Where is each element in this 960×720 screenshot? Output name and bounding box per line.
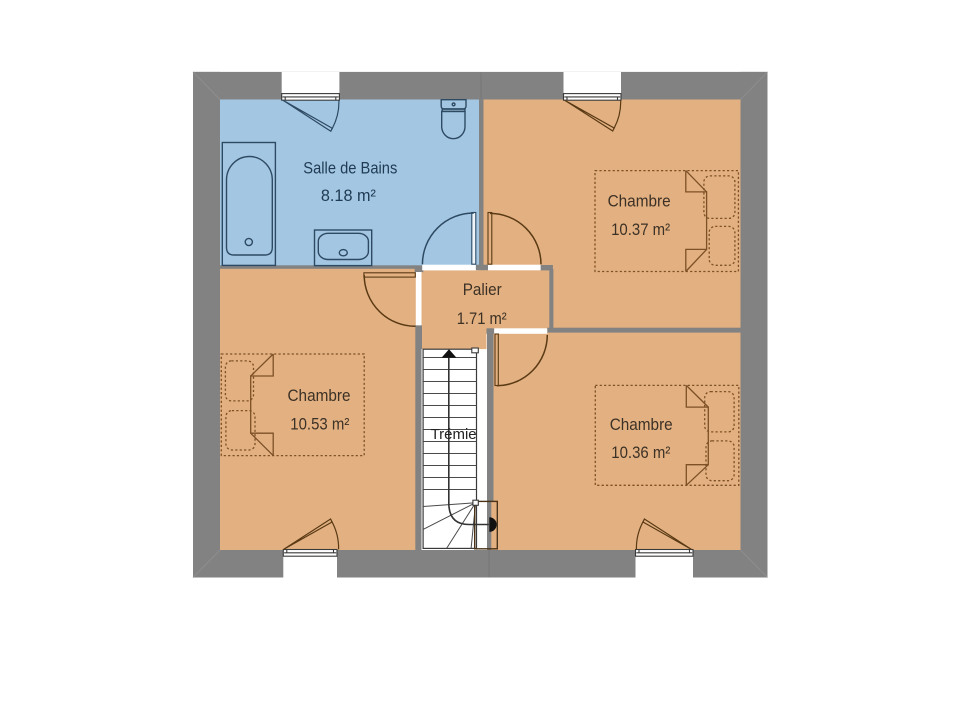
svg-text:Chambre: Chambre (608, 192, 671, 211)
svg-text:10.53 m²: 10.53 m² (290, 415, 349, 434)
svg-text:10.36 m²: 10.36 m² (611, 443, 670, 462)
svg-text:1.71 m²: 1.71 m² (457, 309, 507, 328)
svg-text:Chambre: Chambre (610, 415, 673, 434)
svg-text:Salle de Bains: Salle de Bains (303, 158, 397, 177)
svg-text:Chambre: Chambre (288, 386, 351, 405)
svg-text:Trémie: Trémie (431, 426, 477, 443)
svg-text:8.18 m²: 8.18 m² (321, 186, 376, 205)
svg-text:10.37 m²: 10.37 m² (611, 220, 670, 239)
svg-text:Palier: Palier (463, 280, 502, 299)
